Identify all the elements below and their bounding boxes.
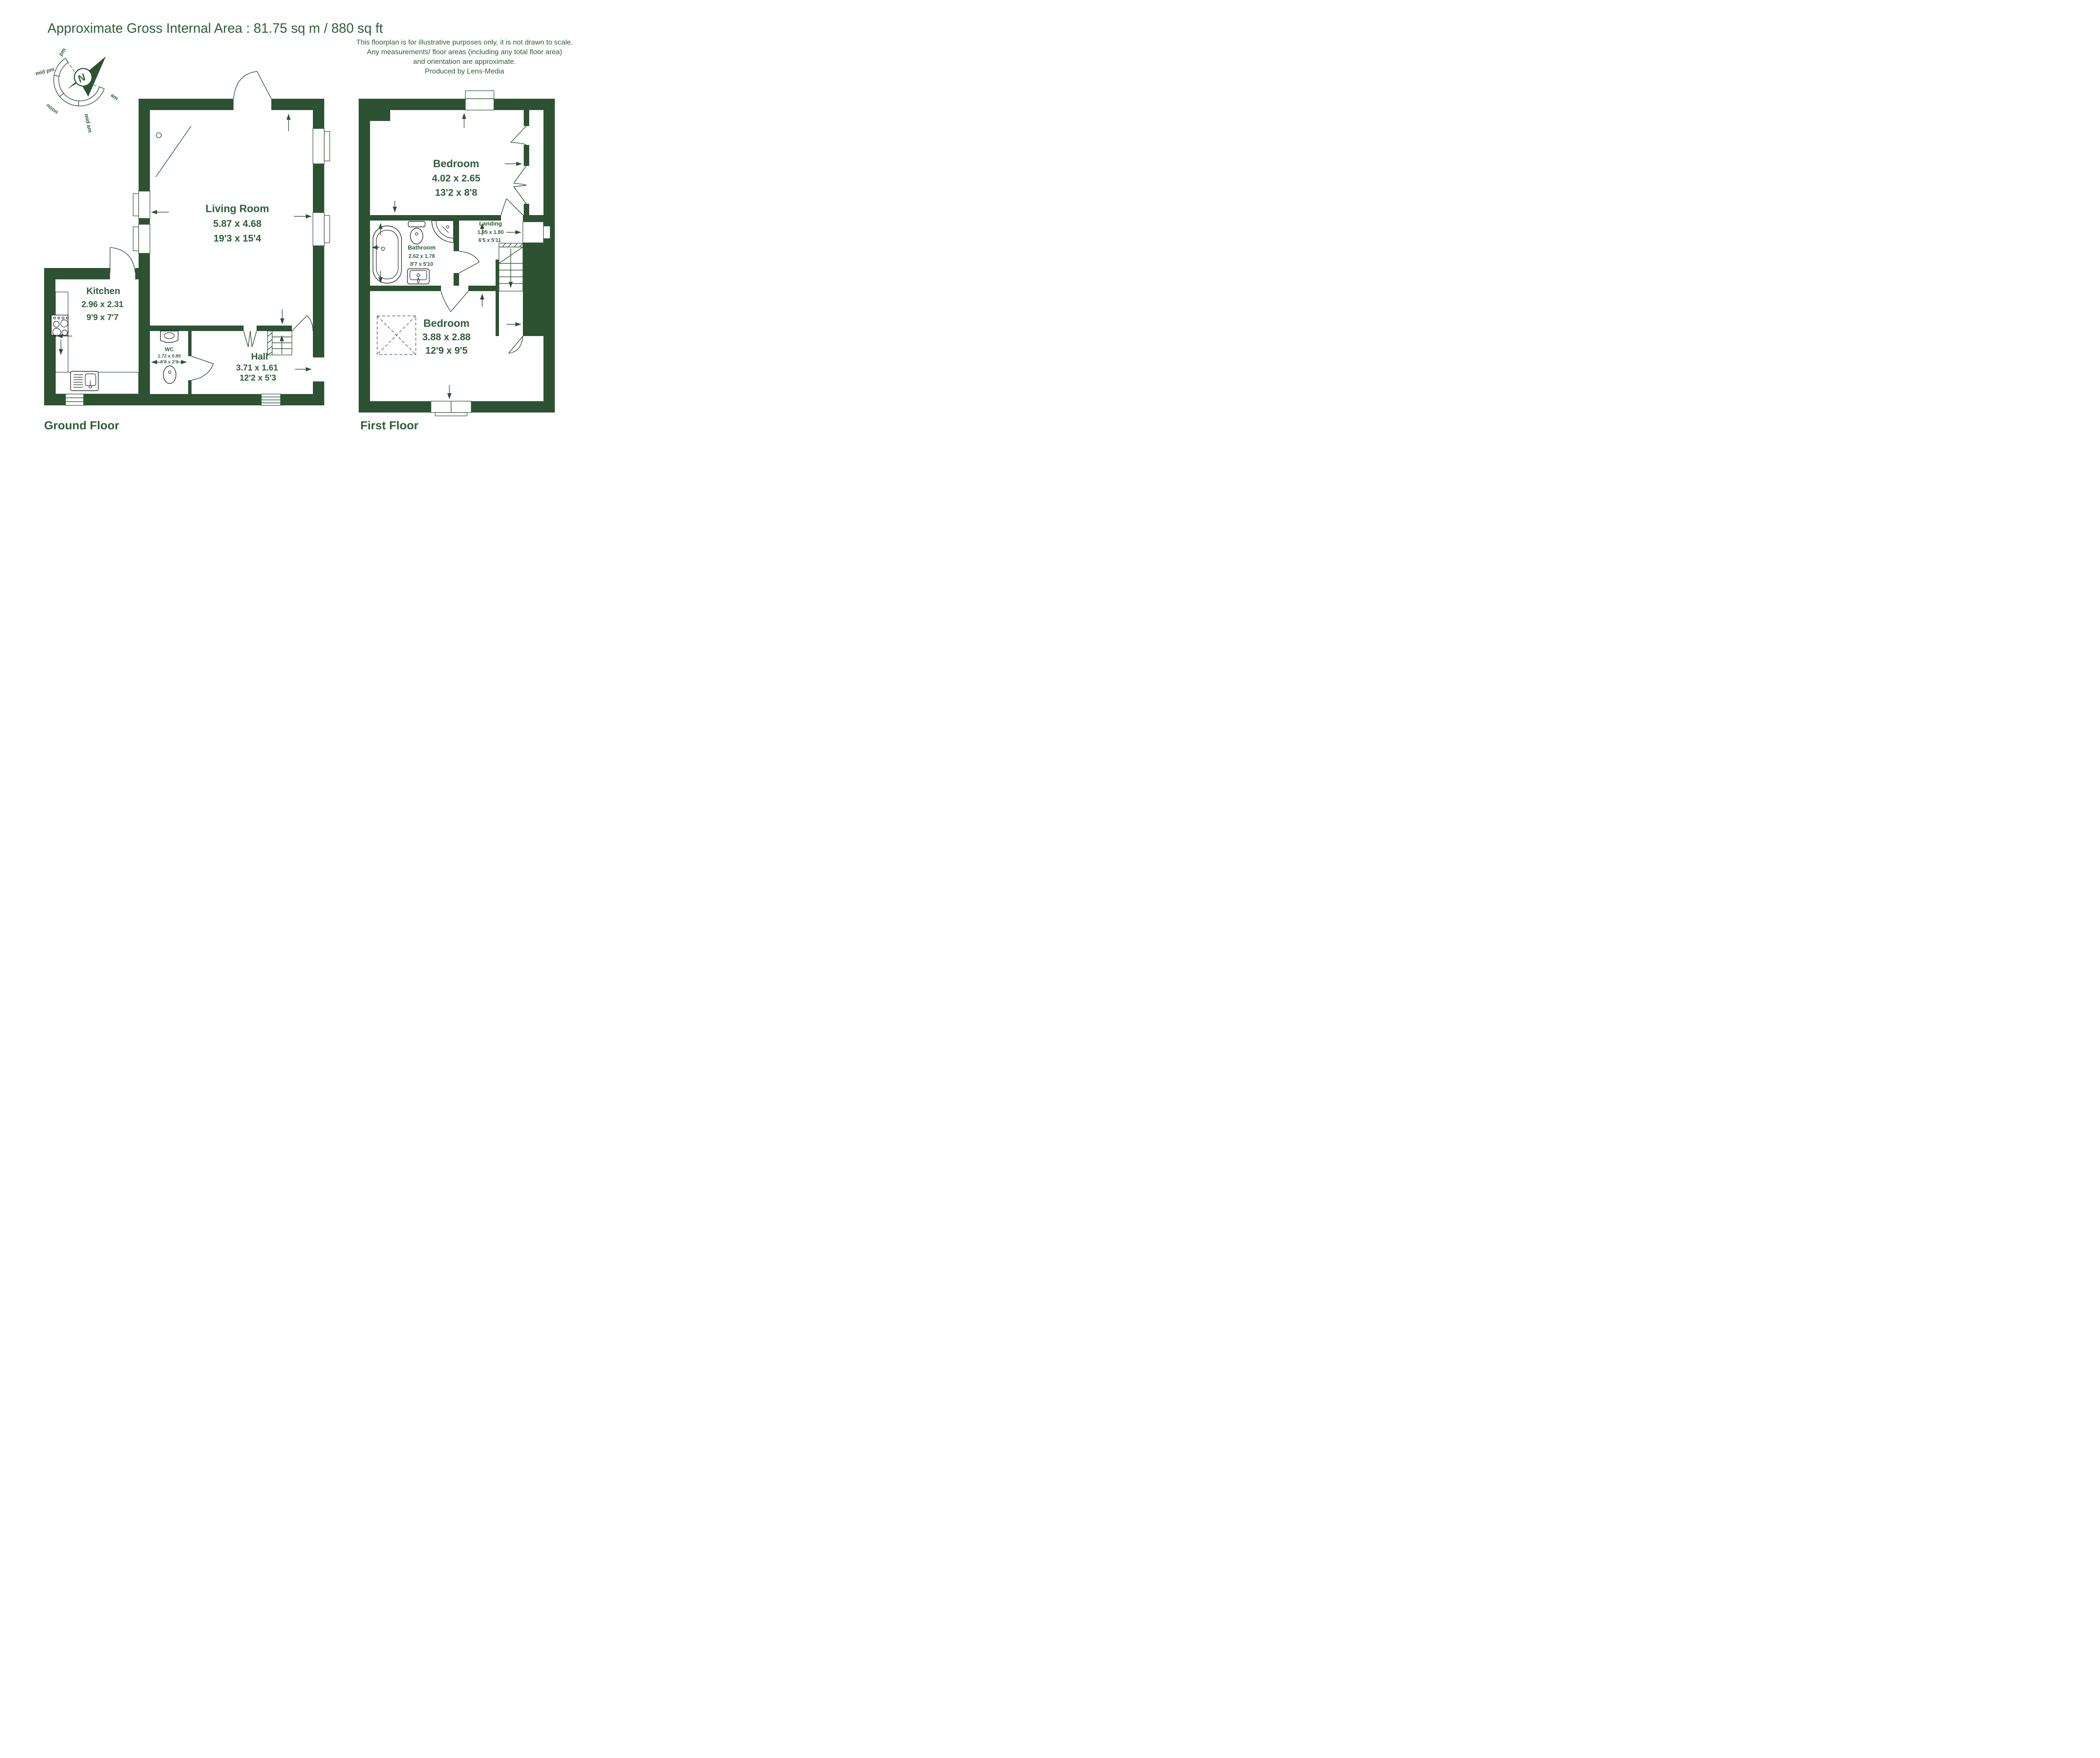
- room-dim-metric: 4.02 x 2.65: [432, 173, 480, 184]
- room-dim-imperial: 6'5 x 5'11: [478, 237, 501, 243]
- hob-icon: [51, 315, 68, 336]
- kitchen-label: Kitchen 2.96 x 2.31 9'9 x 7'7: [81, 286, 123, 322]
- room-name: Bedroom: [423, 318, 470, 329]
- corner-line: [156, 126, 191, 177]
- room-name: Bathroom: [408, 244, 436, 251]
- first-floor-stairs: [499, 243, 523, 291]
- disclaimer-line-4: Produced by Lens-Media: [425, 67, 504, 75]
- compass-label-am: am: [110, 92, 120, 102]
- window: [139, 191, 150, 218]
- floorplan-page: Approximate Gross Internal Area : 81.75 …: [0, 0, 602, 439]
- room-dim-imperial: 9'9 x 7'7: [87, 313, 118, 322]
- ground-stairs: [268, 331, 292, 355]
- bedroom-bottom-window: [431, 401, 471, 416]
- toilet-icon: [163, 366, 176, 384]
- room-dim-imperial: 8'7 x 5'10: [410, 261, 433, 267]
- room-name: Landing: [479, 220, 502, 227]
- window: [313, 213, 324, 246]
- disclaimer: This floorplan is for illustrative purpo…: [356, 38, 573, 75]
- room-dim-metric: 2.96 x 2.31: [81, 300, 123, 309]
- kitchen-sink-icon: [71, 371, 98, 391]
- loft-hatch: [377, 316, 416, 355]
- first-floor-label: First Floor: [360, 419, 419, 432]
- bathroom-sink-icon: [407, 269, 429, 284]
- room-dim-metric: 3.88 x 2.88: [422, 331, 470, 342]
- compass-label-noon: noon: [45, 102, 60, 115]
- room-dim-imperial: 5'8 x 2'9: [160, 360, 178, 365]
- room-name: Bedroom: [433, 158, 479, 170]
- door-arc: [110, 247, 135, 273]
- door-arc: [192, 356, 213, 380]
- living-room-label: Living Room 5.87 x 4.68 19'3 x 15'4: [205, 203, 269, 244]
- window: [313, 129, 324, 164]
- bedroom-2-label: Bedroom 3.88 x 2.88 12'9 x 9'5: [422, 318, 470, 356]
- double-door-leaf: [250, 331, 257, 347]
- room-name: Hall: [251, 351, 268, 362]
- corner-circle: [156, 133, 161, 138]
- disclaimer-line-1: This floorplan is for illustrative purpo…: [356, 38, 573, 46]
- disclaimer-line-3: and orientation are approximate.: [413, 58, 516, 66]
- bedroom-top-window: [465, 91, 494, 110]
- kitchen-window: [66, 394, 84, 405]
- window-sill: [324, 215, 330, 243]
- room-dim-imperial: 12'2 x 5'3: [239, 373, 276, 383]
- room-dim-metric: 2.62 x 1.78: [409, 253, 435, 259]
- room-dim-metric: 1.72 x 0.85: [157, 354, 181, 359]
- door-arc: [292, 315, 313, 331]
- shower-icon: [432, 221, 454, 242]
- door-arc: [501, 199, 523, 215]
- floorplan-svg: Approximate Gross Internal Area : 81.75 …: [0, 0, 602, 439]
- ground-floor-label: Ground Floor: [44, 419, 119, 432]
- hall-label: Hall 3.71 x 1.61 12'2 x 5'3: [236, 351, 278, 383]
- room-name: Living Room: [205, 203, 269, 215]
- front-door-opening: [313, 357, 324, 381]
- window-sill: [133, 227, 139, 251]
- landing-label: Landing 1.95 x 1.80 6'5 x 5'11: [478, 220, 504, 243]
- compass-label-mid-pm: mid pm: [35, 66, 55, 77]
- hall-window: [261, 394, 281, 405]
- room-name: Kitchen: [87, 286, 121, 296]
- ground-floor-windows: [66, 129, 330, 405]
- room-dim-imperial: 19'3 x 15'4: [213, 233, 261, 244]
- bathroom-label: Bathroom 2.62 x 1.78 8'7 x 5'10: [408, 244, 436, 267]
- page-title: Approximate Gross Internal Area : 81.75 …: [47, 21, 383, 36]
- first-floor-plan: Bedroom 4.02 x 2.65 13'2 x 8'8 Landing 1…: [359, 91, 555, 432]
- compass-label-pm: pm: [58, 47, 67, 57]
- compass-label-mid-am: mid am: [83, 113, 93, 133]
- closet-door-arc: [511, 126, 526, 145]
- door-arc: [441, 291, 468, 312]
- window: [139, 224, 150, 253]
- disclaimer-line-2: Any measurements/ floor areas (including…: [367, 48, 562, 56]
- wc-label: WC 1.72 x 0.85 5'8 x 2'9: [157, 347, 181, 365]
- double-door-leaf: [244, 331, 250, 347]
- door-arc: [459, 251, 479, 273]
- room-name: WC: [165, 347, 174, 352]
- compass-rose: N pm mid pm noon mid am am: [35, 47, 120, 133]
- room-dim-metric: 3.71 x 1.61: [236, 363, 278, 373]
- ground-floor-walls: [44, 99, 324, 405]
- room-dim-metric: 5.87 x 4.68: [213, 218, 261, 229]
- window-sill: [133, 194, 139, 216]
- room-dim-imperial: 13'2 x 8'8: [435, 187, 478, 198]
- compass-dashed-line: [67, 61, 74, 72]
- bedroom-1-label: Bedroom 4.02 x 2.65 13'2 x 8'8: [432, 158, 480, 198]
- room-dim-imperial: 12'9 x 9'5: [425, 345, 468, 356]
- bathtub-icon: [373, 226, 402, 283]
- door-arc: [509, 336, 523, 353]
- window-sill: [324, 131, 330, 161]
- door-arc: [234, 71, 271, 99]
- closet-door-arc: [514, 185, 526, 204]
- toilet-icon: [408, 221, 425, 244]
- room-dim-metric: 1.95 x 1.80: [478, 229, 504, 235]
- bathroom-fixtures: [373, 221, 454, 284]
- closet-door-arc: [514, 166, 526, 185]
